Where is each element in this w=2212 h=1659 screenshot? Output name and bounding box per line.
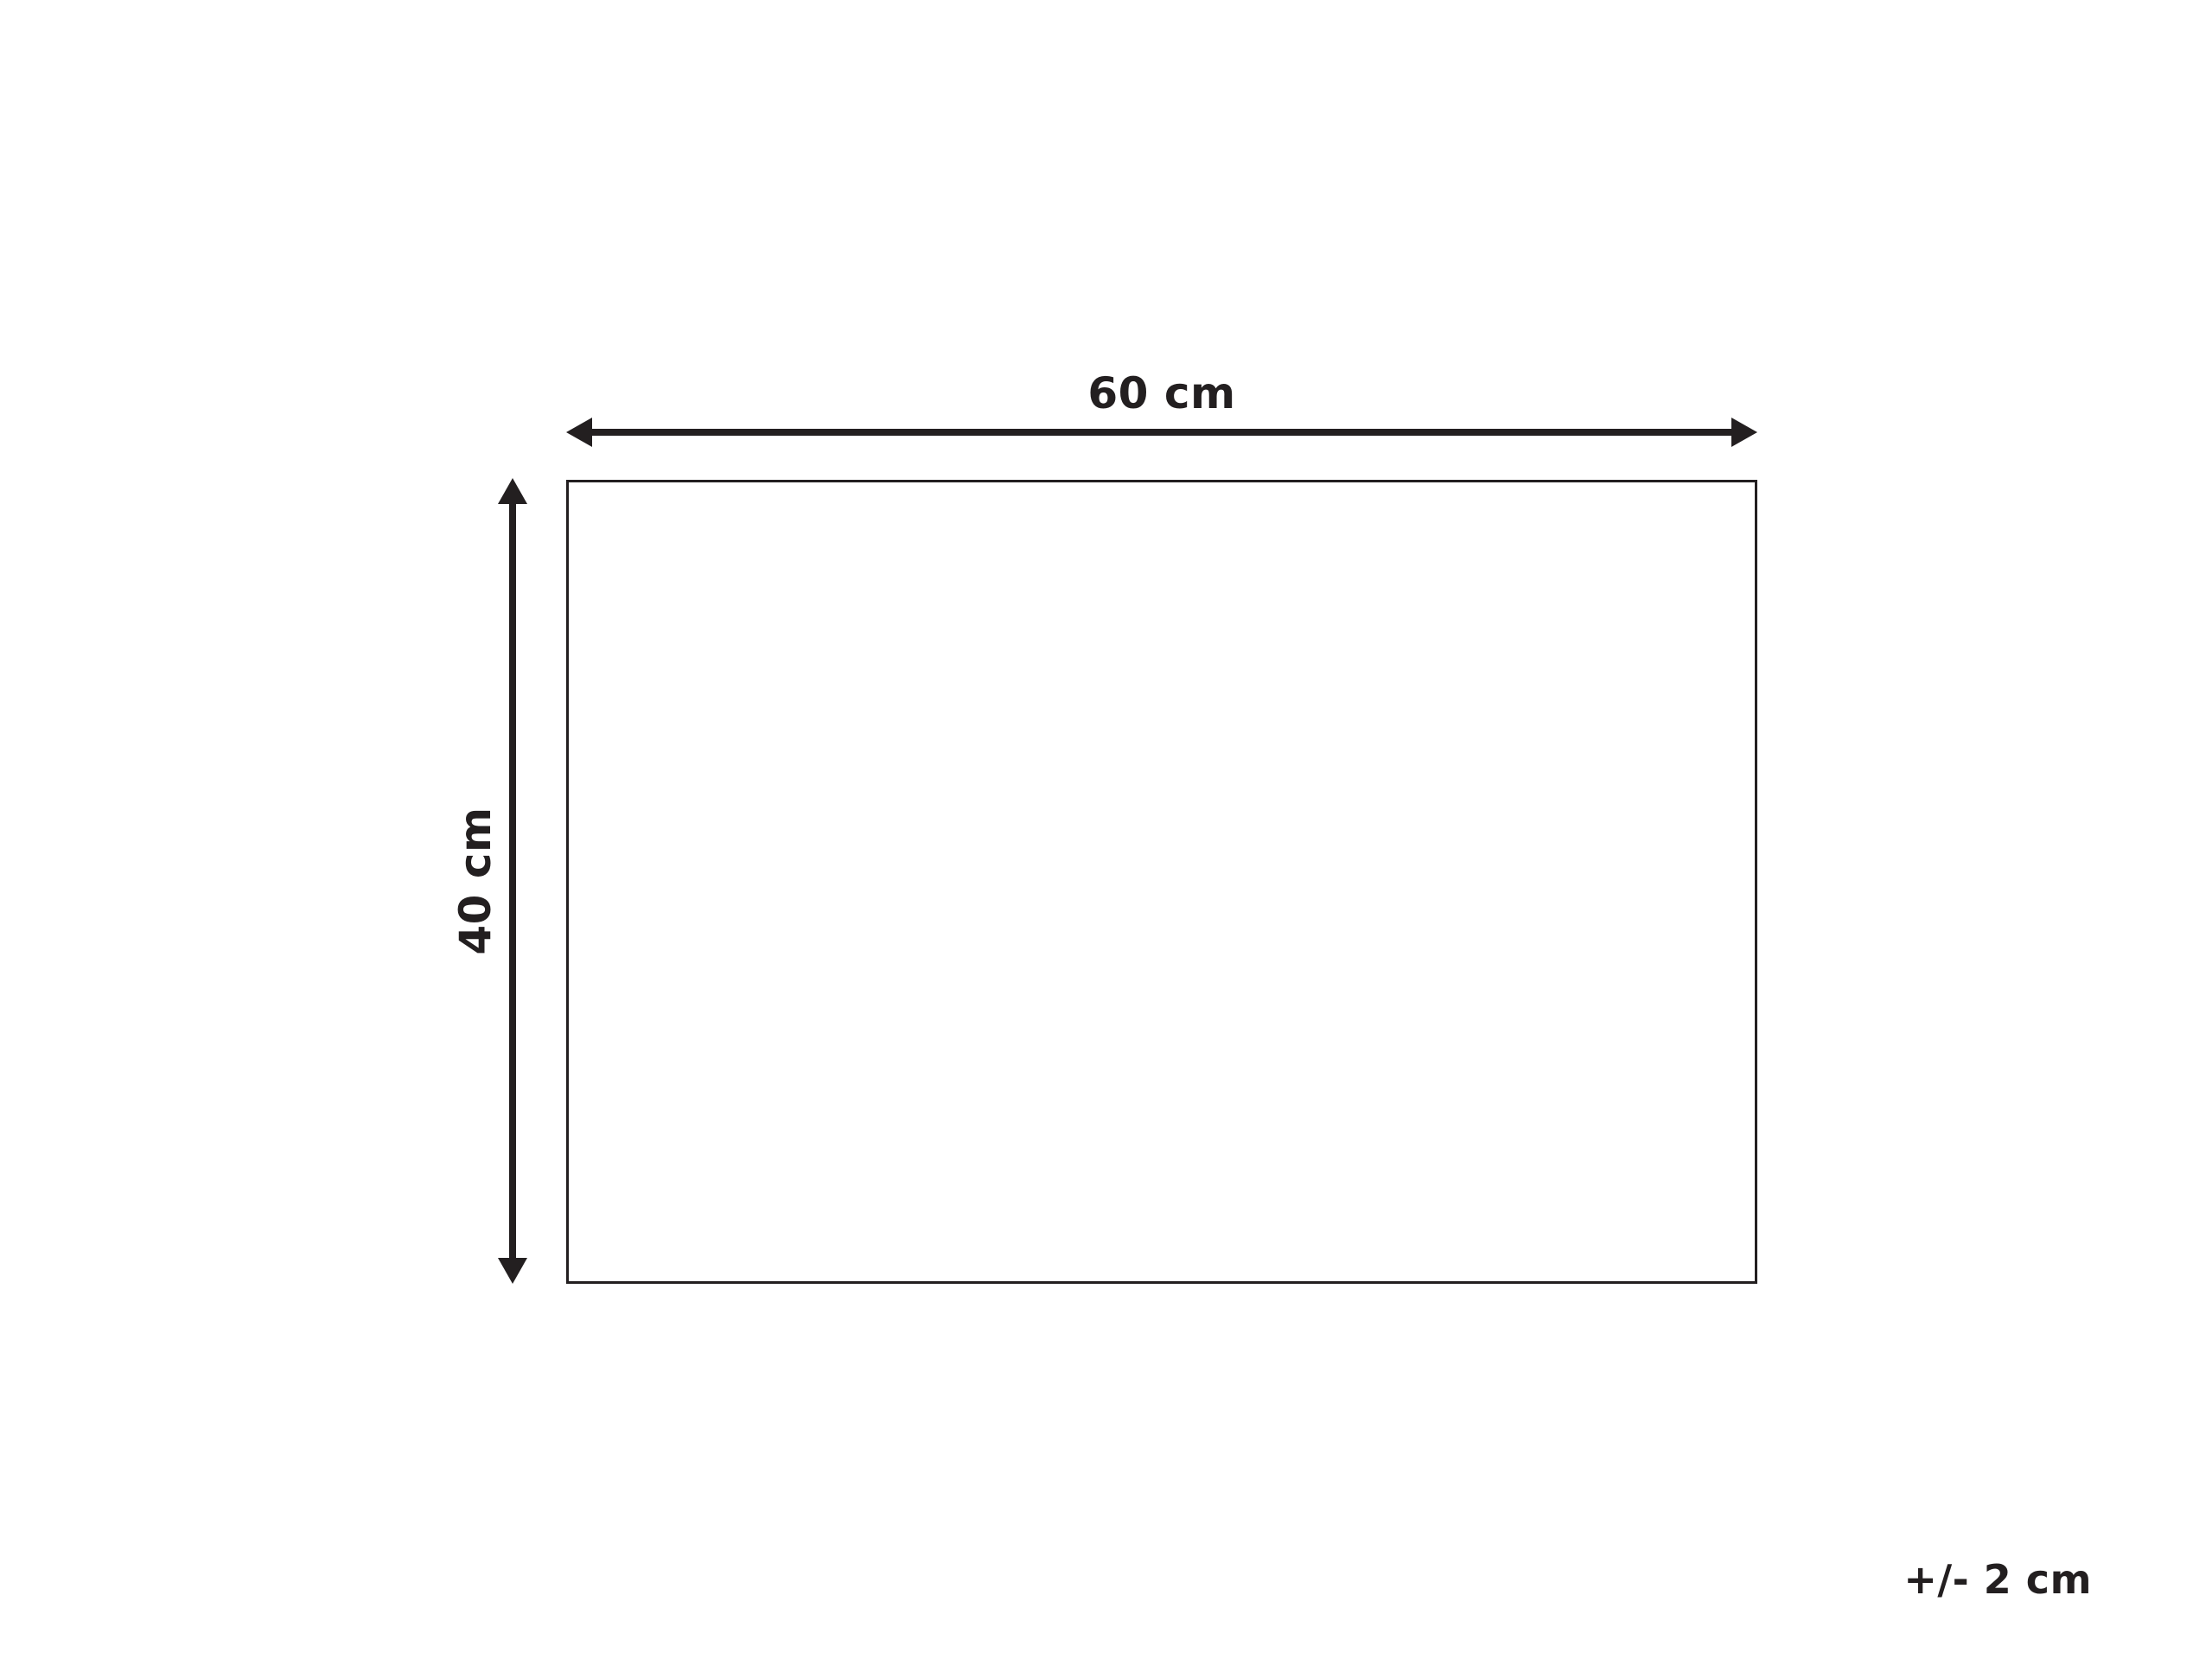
height-arrow-shaft (509, 499, 516, 1263)
height-dimension-arrow (498, 478, 527, 1284)
product-outline-rectangle (566, 480, 1757, 1284)
arrow-down-icon (498, 1258, 527, 1284)
tolerance-label: +/- 2 cm (1903, 1558, 2092, 1601)
width-arrow-shaft (587, 429, 1737, 436)
width-dimension-label: 60 cm (566, 372, 1757, 415)
width-dimension-arrow (566, 418, 1757, 447)
height-dimension-label: 40 cm (454, 794, 497, 967)
dimension-diagram: 60 cm 40 cm +/- 2 cm (0, 0, 2212, 1659)
arrow-right-icon (1731, 418, 1757, 447)
